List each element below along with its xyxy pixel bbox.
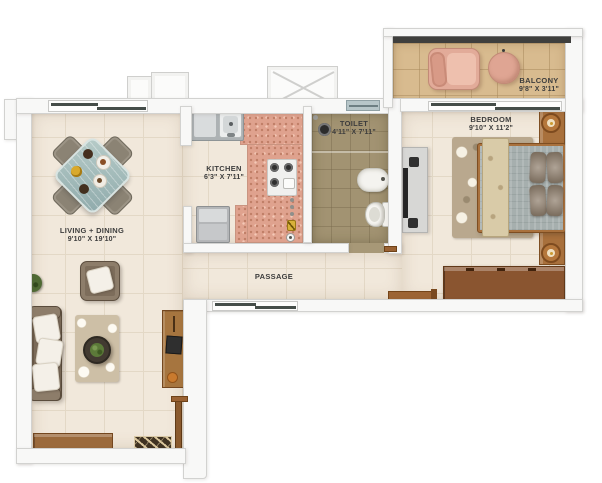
cup-center: [97, 178, 102, 183]
wall-balcony-left: [383, 28, 393, 108]
table-vase-dot: [502, 49, 505, 52]
wall-kitchen-bottom: [183, 243, 349, 253]
dark-plate: [79, 184, 89, 194]
wall-kitchen-sink-divider: [180, 106, 192, 146]
lounge-chair-seat: [447, 53, 476, 85]
sink-drain: [229, 122, 233, 126]
wc-seat: [369, 207, 380, 222]
wardrobe-handle: [528, 268, 536, 271]
wardrobe-handle: [466, 268, 474, 271]
wall-living-right-lower: [183, 299, 207, 479]
wardrobe-handle: [497, 268, 505, 271]
laptop: [165, 335, 182, 354]
dark-bowl: [83, 149, 93, 159]
wall-right-outer: [565, 28, 583, 312]
balcony-round-table: [488, 52, 520, 84]
window-glass: [51, 103, 98, 106]
wardrobe: [443, 266, 565, 301]
gas-point-marker: [287, 220, 296, 231]
bedside-lamp: [541, 243, 561, 263]
wall-living-bottom: [16, 448, 186, 464]
refrigerator-bottom-panel: [199, 224, 227, 240]
bed-pillow: [529, 185, 547, 217]
toilet-door-threshold: [384, 246, 397, 252]
stove-tray: [283, 178, 295, 189]
fruit-plate: [71, 166, 82, 177]
tv-screen: [403, 168, 408, 218]
refrigerator-top-panel: [199, 209, 227, 222]
toilet-door-threshold-floor: [349, 243, 385, 253]
tv-speaker: [408, 218, 418, 228]
bed-pillow: [546, 185, 564, 217]
passage-window: [212, 301, 298, 311]
living-window: [48, 100, 148, 112]
passage-floor: [183, 253, 402, 299]
wall-toilet-right: [388, 98, 402, 254]
floor-plan: LIVING + DINING 9'10" X 19'10" KITCHEN 6…: [0, 0, 602, 483]
bedside-lamp: [541, 113, 561, 133]
sink-drainboard: [194, 113, 216, 137]
balcony-sliding-door: [428, 101, 562, 111]
desk-lamp: [167, 372, 178, 383]
water-point-center: [289, 236, 292, 239]
toilet-shower-partition-line: [312, 151, 388, 153]
sink-faucet: [227, 133, 235, 137]
sofa-cushion: [32, 362, 61, 393]
coffee-table-plant: [90, 343, 104, 357]
window-glass: [215, 303, 256, 306]
entry-door: [175, 399, 182, 455]
balcony-railing: [393, 36, 571, 43]
window-glass: [495, 107, 560, 110]
stove-burner: [270, 178, 279, 187]
stove-burner: [270, 163, 279, 172]
window-glass: [349, 105, 378, 107]
basin-tap: [381, 177, 385, 181]
bed-pillow: [546, 152, 564, 184]
wall-left: [16, 98, 32, 464]
window-glass: [97, 107, 146, 110]
toilet-window: [346, 100, 380, 111]
stove-burner: [284, 163, 293, 172]
kitchen-counter-bottom-ext: [235, 205, 248, 243]
food-bowl: [100, 159, 106, 165]
bed-pillow: [529, 152, 547, 184]
desk-pen: [173, 316, 175, 332]
tv-speaker: [409, 157, 419, 167]
window-glass: [255, 306, 296, 309]
bed-runner-quilt: [482, 138, 509, 237]
window-glass: [431, 103, 496, 106]
entry-door-threshold: [171, 396, 188, 402]
wall-kitchen-toilet-divider: [303, 106, 312, 243]
shower-arm-dot: [313, 115, 318, 120]
utility-dot: [290, 198, 294, 202]
utility-dot: [290, 212, 294, 216]
shower-head: [318, 123, 331, 136]
utility-dot: [290, 205, 294, 209]
